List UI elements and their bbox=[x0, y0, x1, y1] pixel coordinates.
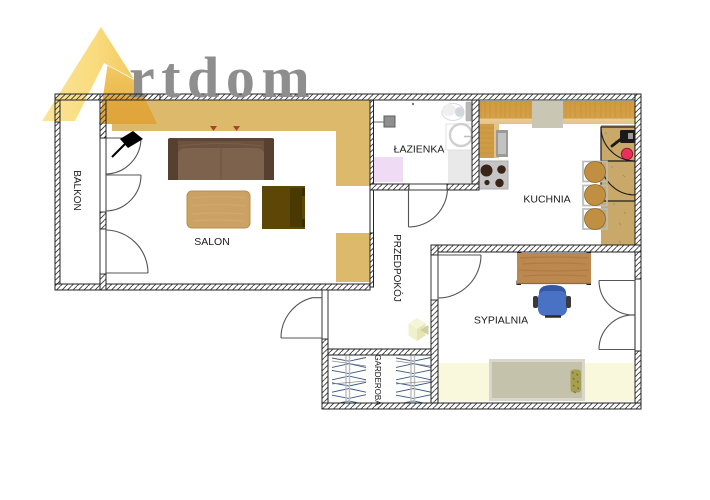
svg-text:BALKON: BALKON bbox=[71, 170, 82, 211]
svg-text:GARDEROBA: GARDEROBA bbox=[373, 354, 382, 406]
svg-text:ŁAZIENKA: ŁAZIENKA bbox=[394, 144, 445, 156]
svg-text:KUCHNIA: KUCHNIA bbox=[523, 194, 570, 206]
svg-text:SALON: SALON bbox=[194, 236, 230, 248]
svg-text:SYPIALNIA: SYPIALNIA bbox=[474, 315, 528, 327]
svg-text:PRZEDPOKÓJ: PRZEDPOKÓJ bbox=[391, 234, 404, 302]
